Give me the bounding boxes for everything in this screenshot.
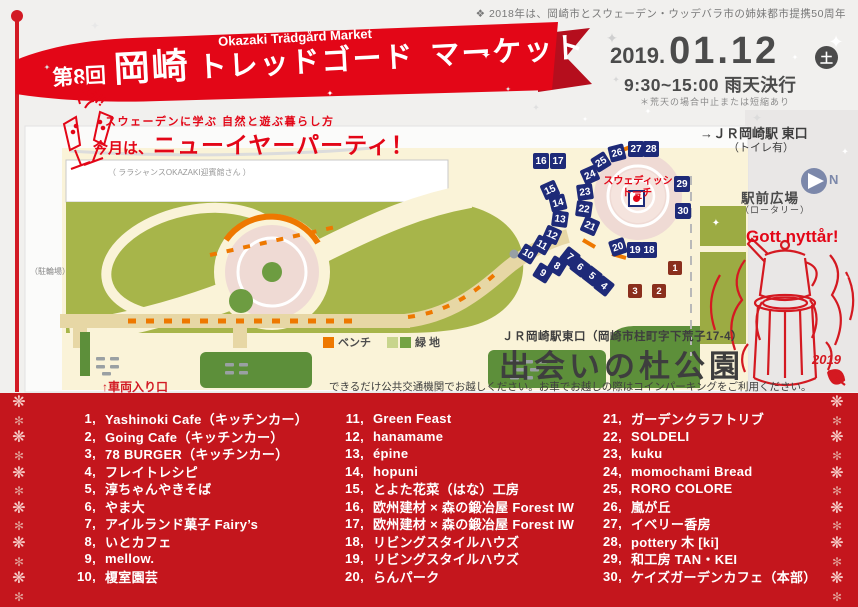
snowflake-icon: ✻ bbox=[14, 556, 24, 568]
vendor-row: 24,momochami Bread bbox=[582, 463, 817, 481]
vendor-number: 11, bbox=[324, 411, 364, 426]
snowflake-icon: ✻ bbox=[832, 415, 842, 427]
vendor-name: フレイトレシピ bbox=[105, 462, 198, 481]
green-legend-swatch-light bbox=[387, 337, 398, 348]
snowflake-border-left: ❋✻❋✻❋✻❋✻❋✻❋✻ bbox=[4, 395, 34, 603]
vendor-number: 1, bbox=[56, 411, 96, 426]
vendor-row: 27,イベリー香房 bbox=[582, 515, 817, 533]
vendor-name: イベリー香房 bbox=[631, 514, 711, 533]
vendor-number: 17, bbox=[324, 516, 364, 531]
vendor-row: 23,kuku bbox=[582, 445, 817, 463]
vendor-number: 18, bbox=[324, 534, 364, 549]
vendor-name: kuku bbox=[631, 446, 663, 461]
stall-marker-18: 18 bbox=[641, 242, 657, 258]
vendor-row: 9,mellow. bbox=[56, 550, 308, 568]
vendor-row: 21,ガーデンクラフトリブ bbox=[582, 410, 817, 428]
snowflake-icon: ✻ bbox=[832, 520, 842, 532]
vendor-name: hopuni bbox=[373, 464, 418, 479]
stall-marker-13: 13 bbox=[551, 210, 569, 228]
green-legend-swatch-dark bbox=[400, 337, 411, 348]
stall-marker-29: 29 bbox=[674, 176, 690, 192]
event-flyer: ✦✦✦✦✦✦✦✦✦✦✦✦✦✦✦✦✦✦ ❖ 2018年は、岡崎市とスウェーデン・ウ… bbox=[0, 0, 858, 607]
vendor-row: 18,リビングスタイルハウズ bbox=[324, 533, 574, 551]
vendor-row: 4,フレイトレシピ bbox=[56, 463, 308, 481]
snowflake-icon: ✻ bbox=[14, 415, 24, 427]
vendor-number: 25, bbox=[582, 481, 622, 496]
snowflake-icon: ✻ bbox=[14, 485, 24, 497]
vendor-row: 15,とよた花菜（はな）工房 bbox=[324, 480, 574, 498]
vendor-number: 24, bbox=[582, 464, 622, 479]
vendor-row: 28,pottery 木 [ki] bbox=[582, 533, 817, 551]
snowflake-icon: ✻ bbox=[832, 485, 842, 497]
vendor-row: 26,嵐が丘 bbox=[582, 498, 817, 516]
stall-marker-28: 28 bbox=[643, 141, 659, 157]
snowflake-icon: ❋ bbox=[830, 430, 843, 446]
vendor-name: RORO COLORE bbox=[631, 481, 733, 496]
vendor-name: ケイズガーデンカフェ（本部） bbox=[631, 567, 817, 586]
snowflake-icon: ❋ bbox=[12, 395, 25, 411]
vendor-name: SOLDELI bbox=[631, 429, 689, 444]
vendor-row: 8,いとカフェ bbox=[56, 533, 308, 551]
stall-marker-26: 26 bbox=[607, 143, 626, 162]
vendor-row: 10,榎室園芸 bbox=[56, 568, 308, 586]
vendor-row: 20,らんパーク bbox=[324, 568, 574, 586]
snowflake-icon: ❋ bbox=[12, 501, 25, 517]
bench-legend-swatch bbox=[323, 337, 334, 348]
green-legend-label: 緑 地 bbox=[415, 334, 440, 350]
vendor-column-3: 21,ガーデンクラフトリブ22,SOLDELI23,kuku24,momocha… bbox=[582, 410, 817, 585]
vendor-column-2: 11,Green Feast12,hanamame13,épine14,hopu… bbox=[324, 410, 574, 585]
vendor-number: 16, bbox=[324, 499, 364, 514]
vendor-number: 27, bbox=[582, 516, 622, 531]
map-legend: ベンチ 緑 地 bbox=[323, 334, 440, 350]
vendor-name: 淳ちゃんやきそば bbox=[105, 479, 211, 498]
vendor-name: 嵐が丘 bbox=[631, 497, 671, 516]
vendor-number: 22, bbox=[582, 429, 622, 444]
vendor-row: 25,RORO COLORE bbox=[582, 480, 817, 498]
vendor-row: 6,やま大 bbox=[56, 498, 308, 516]
vendor-column-1: 1,Yashinoki Cafe（キッチンカー）2,Going Cafe（キッチ… bbox=[56, 410, 308, 585]
vendor-name: 和工房 TAN・KEI bbox=[631, 549, 737, 568]
vendor-row: 12,hanamame bbox=[324, 428, 574, 446]
stall-marker-27: 27 bbox=[628, 141, 644, 157]
vendor-name: pottery 木 [ki] bbox=[631, 532, 719, 551]
snowflake-icon: ✻ bbox=[14, 520, 24, 532]
snowflake-icon: ✻ bbox=[14, 591, 24, 603]
vendor-number: 8, bbox=[56, 534, 96, 549]
vendor-name: 欧州建材 × 森の鍛冶屋 Forest IW bbox=[373, 497, 574, 516]
stall-marker-3: 3 bbox=[628, 284, 642, 298]
vendor-name: アイルランド菓子 Fairy’s bbox=[105, 514, 258, 533]
stall-marker-2: 2 bbox=[652, 284, 666, 298]
snowflake-icon: ✻ bbox=[832, 450, 842, 462]
vendor-row: 13,épine bbox=[324, 445, 574, 463]
vendor-number: 7, bbox=[56, 516, 96, 531]
vendor-list-band: ❋✻❋✻❋✻❋✻❋✻❋✻ ❋✻❋✻❋✻❋✻❋✻❋✻ 1,Yashinoki Ca… bbox=[0, 393, 858, 607]
stall-marker-20: 20 bbox=[608, 237, 628, 257]
vendor-name: mellow. bbox=[105, 551, 154, 566]
vendor-row: 3,78 BURGER（キッチンカー） bbox=[56, 445, 308, 463]
vendor-number: 19, bbox=[324, 551, 364, 566]
vendor-row: 19,リビングスタイルハウズ bbox=[324, 550, 574, 568]
snowflake-icon: ❋ bbox=[830, 395, 843, 411]
vendor-name: らんパーク bbox=[373, 567, 440, 586]
stall-marker-19: 19 bbox=[627, 242, 643, 258]
stall-marker-17: 17 bbox=[550, 153, 566, 169]
stall-marker-16: 16 bbox=[533, 153, 549, 169]
vendor-name: いとカフェ bbox=[105, 532, 172, 551]
vendor-number: 29, bbox=[582, 551, 622, 566]
rotary-note: （ロータリー） bbox=[740, 203, 810, 216]
vendor-name: Yashinoki Cafe（キッチンカー） bbox=[105, 409, 308, 428]
vendor-number: 9, bbox=[56, 551, 96, 566]
snowflake-icon: ❋ bbox=[12, 466, 25, 482]
vendor-number: 13, bbox=[324, 446, 364, 461]
vendor-number: 30, bbox=[582, 569, 622, 584]
vendor-row: 29,和工房 TAN・KEI bbox=[582, 550, 817, 568]
vendor-name: Green Feast bbox=[373, 411, 451, 426]
compass-n-label: N bbox=[829, 172, 838, 187]
vendor-number: 2, bbox=[56, 429, 96, 444]
vendor-name: Going Cafe（キッチンカー） bbox=[105, 427, 284, 446]
snowflake-icon: ❋ bbox=[830, 571, 843, 587]
vendor-number: 5, bbox=[56, 481, 96, 496]
vendor-name: épine bbox=[373, 446, 408, 461]
transport-note: できるだけ公共交通機関でお越しください。お車でお越しの際はコインパーキングをご利… bbox=[329, 379, 811, 394]
vendor-row: 22,SOLDELI bbox=[582, 428, 817, 446]
vendor-row: 1,Yashinoki Cafe（キッチンカー） bbox=[56, 410, 308, 428]
snowflake-icon: ❋ bbox=[830, 466, 843, 482]
stall-marker-21: 21 bbox=[579, 215, 600, 236]
vendor-name: ガーデンクラフトリブ bbox=[631, 409, 764, 428]
vendor-number: 15, bbox=[324, 481, 364, 496]
vendor-number: 12, bbox=[324, 429, 364, 444]
vendor-name: やま大 bbox=[105, 497, 145, 516]
vendor-name: momochami Bread bbox=[631, 464, 753, 479]
vendor-row: 17,欧州建材 × 森の鍛冶屋 Forest IW bbox=[324, 515, 574, 533]
vendor-number: 14, bbox=[324, 464, 364, 479]
vendor-number: 3, bbox=[56, 446, 96, 461]
stall-marker-30: 30 bbox=[675, 203, 691, 219]
snowflake-icon: ✻ bbox=[832, 556, 842, 568]
vendor-row: 5,淳ちゃんやきそば bbox=[56, 480, 308, 498]
vendor-number: 4, bbox=[56, 464, 96, 479]
vendor-row: 16,欧州建材 × 森の鍛冶屋 Forest IW bbox=[324, 498, 574, 516]
vendor-name: 78 BURGER（キッチンカー） bbox=[105, 444, 289, 463]
vendor-name: リビングスタイルハウズ bbox=[373, 532, 519, 551]
torch-year-tag: 2019 bbox=[812, 352, 841, 367]
vendor-row: 7,アイルランド菓子 Fairy’s bbox=[56, 515, 308, 533]
vendor-name: 榎室園芸 bbox=[105, 567, 158, 586]
snowflake-icon: ❋ bbox=[830, 501, 843, 517]
stall-marker-1: 1 bbox=[668, 261, 682, 275]
snowflake-border-right: ❋✻❋✻❋✻❋✻❋✻❋✻ bbox=[822, 395, 852, 603]
vendor-name: hanamame bbox=[373, 429, 443, 444]
snowflake-icon: ✻ bbox=[14, 450, 24, 462]
vendor-row: 14,hopuni bbox=[324, 463, 574, 481]
vendor-number: 10, bbox=[56, 569, 96, 584]
vendor-name: とよた花菜（はな）工房 bbox=[373, 479, 519, 498]
vendor-name: リビングスタイルハウズ bbox=[373, 549, 519, 568]
vendor-row: 2,Going Cafe（キッチンカー） bbox=[56, 428, 308, 446]
vendor-number: 20, bbox=[324, 569, 364, 584]
vendor-row: 30,ケイズガーデンカフェ（本部） bbox=[582, 568, 817, 586]
snowflake-icon: ❋ bbox=[830, 536, 843, 552]
bench-legend-label: ベンチ bbox=[338, 334, 371, 350]
snowflake-icon: ❋ bbox=[12, 430, 25, 446]
vendor-number: 26, bbox=[582, 499, 622, 514]
snowflake-icon: ❋ bbox=[12, 536, 25, 552]
gott-nyttar-text: Gott nyttår! bbox=[746, 227, 839, 247]
vendor-number: 6, bbox=[56, 499, 96, 514]
vendor-number: 21, bbox=[582, 411, 622, 426]
vendor-number: 23, bbox=[582, 446, 622, 461]
snowflake-icon: ✻ bbox=[832, 591, 842, 603]
snowflake-icon: ❋ bbox=[12, 571, 25, 587]
stall-marker-23: 23 bbox=[576, 183, 594, 201]
stall-marker-22: 22 bbox=[575, 200, 593, 218]
vendor-number: 28, bbox=[582, 534, 622, 549]
vendor-name: 欧州建材 × 森の鍛冶屋 Forest IW bbox=[373, 514, 574, 533]
station-toilet-note: （トイレ有） bbox=[728, 139, 794, 155]
vendor-row: 11,Green Feast bbox=[324, 410, 574, 428]
